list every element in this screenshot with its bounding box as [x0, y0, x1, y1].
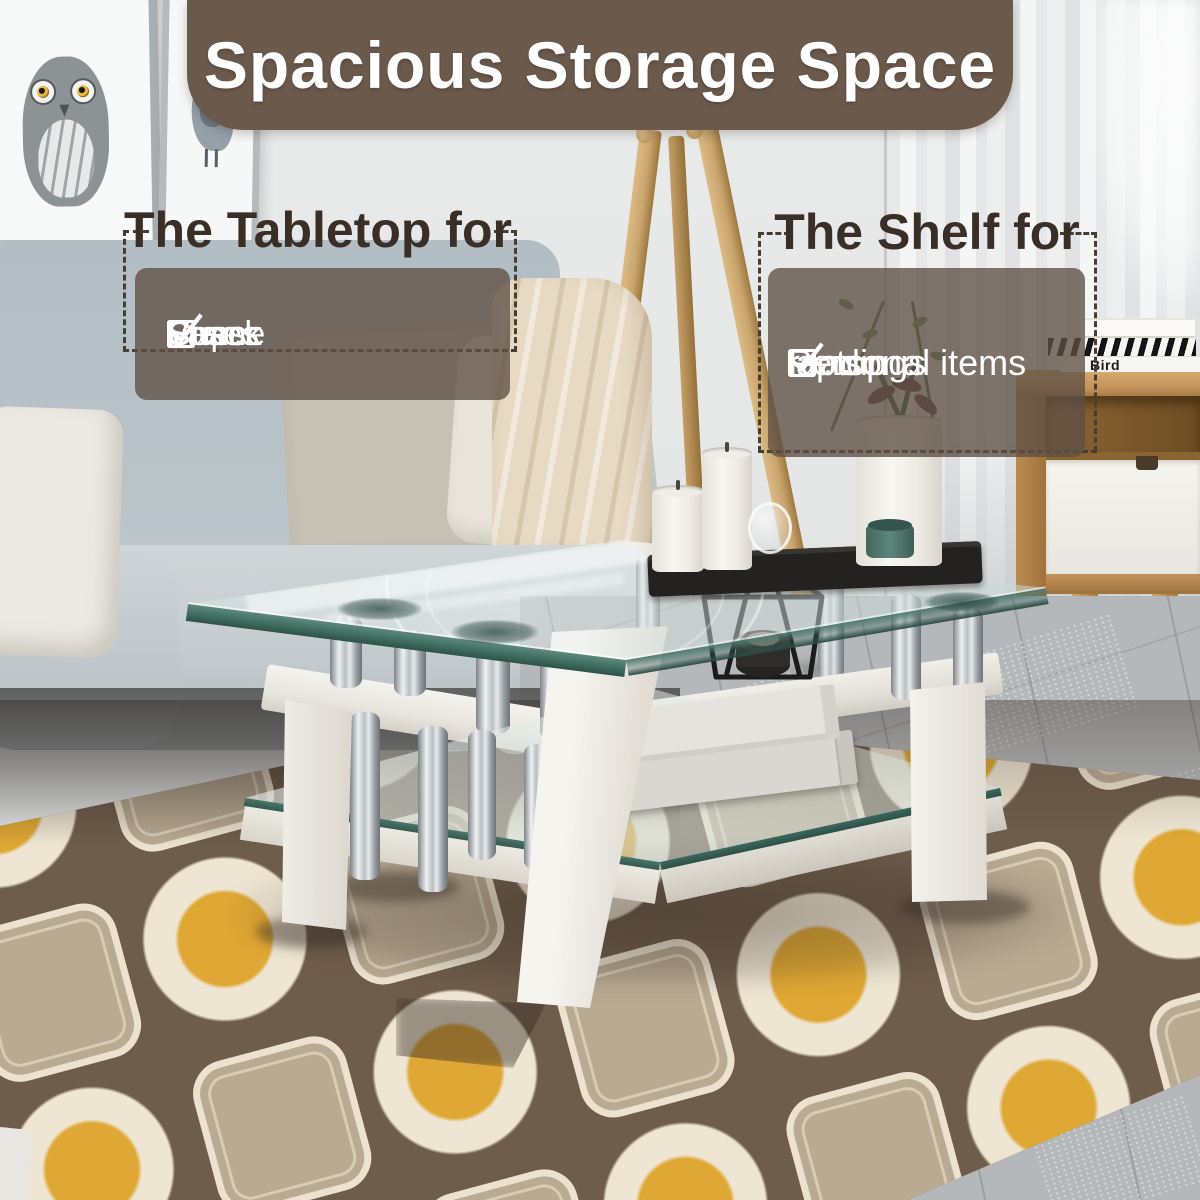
tabletop-callout-panel: Cups Vases Frame Snack — [135, 268, 510, 400]
window-light — [1092, 0, 1200, 300]
glass-sphere-vase — [748, 502, 792, 554]
banner-title: Spacious Storage Space — [204, 27, 996, 103]
glass-leg-dot — [925, 592, 999, 612]
side-table-drawer — [1046, 460, 1200, 574]
product-marketing-image: Bird — [0, 0, 1200, 1200]
pillar-candle — [652, 490, 704, 572]
sofa-pillow-white — [0, 406, 124, 659]
glass-leg-dot — [338, 598, 422, 620]
drawer-handle-notch — [1136, 456, 1158, 470]
banner: Spacious Storage Space — [187, 0, 1013, 130]
chrome-support — [468, 730, 496, 860]
teal-cup — [866, 524, 914, 558]
white-table-leg — [282, 700, 352, 932]
chrome-support — [418, 726, 448, 892]
shelf-callout-panel: Personal items readings laptop — [768, 268, 1085, 457]
shelf-callout-border — [1094, 232, 1097, 452]
pillar-candle — [702, 452, 752, 570]
white-table-leg — [910, 682, 987, 904]
chrome-support — [350, 712, 380, 880]
tabletop-callout-title: The Tabletop for — [118, 201, 518, 259]
book-spine-label: Bird — [1090, 357, 1170, 373]
shelf-callout-title: The Shelf for — [753, 203, 1101, 261]
owl-artwork — [22, 56, 111, 207]
glass-leg-dot — [452, 620, 538, 644]
shelf-callout-border — [758, 232, 761, 452]
book-stack — [1085, 320, 1195, 338]
